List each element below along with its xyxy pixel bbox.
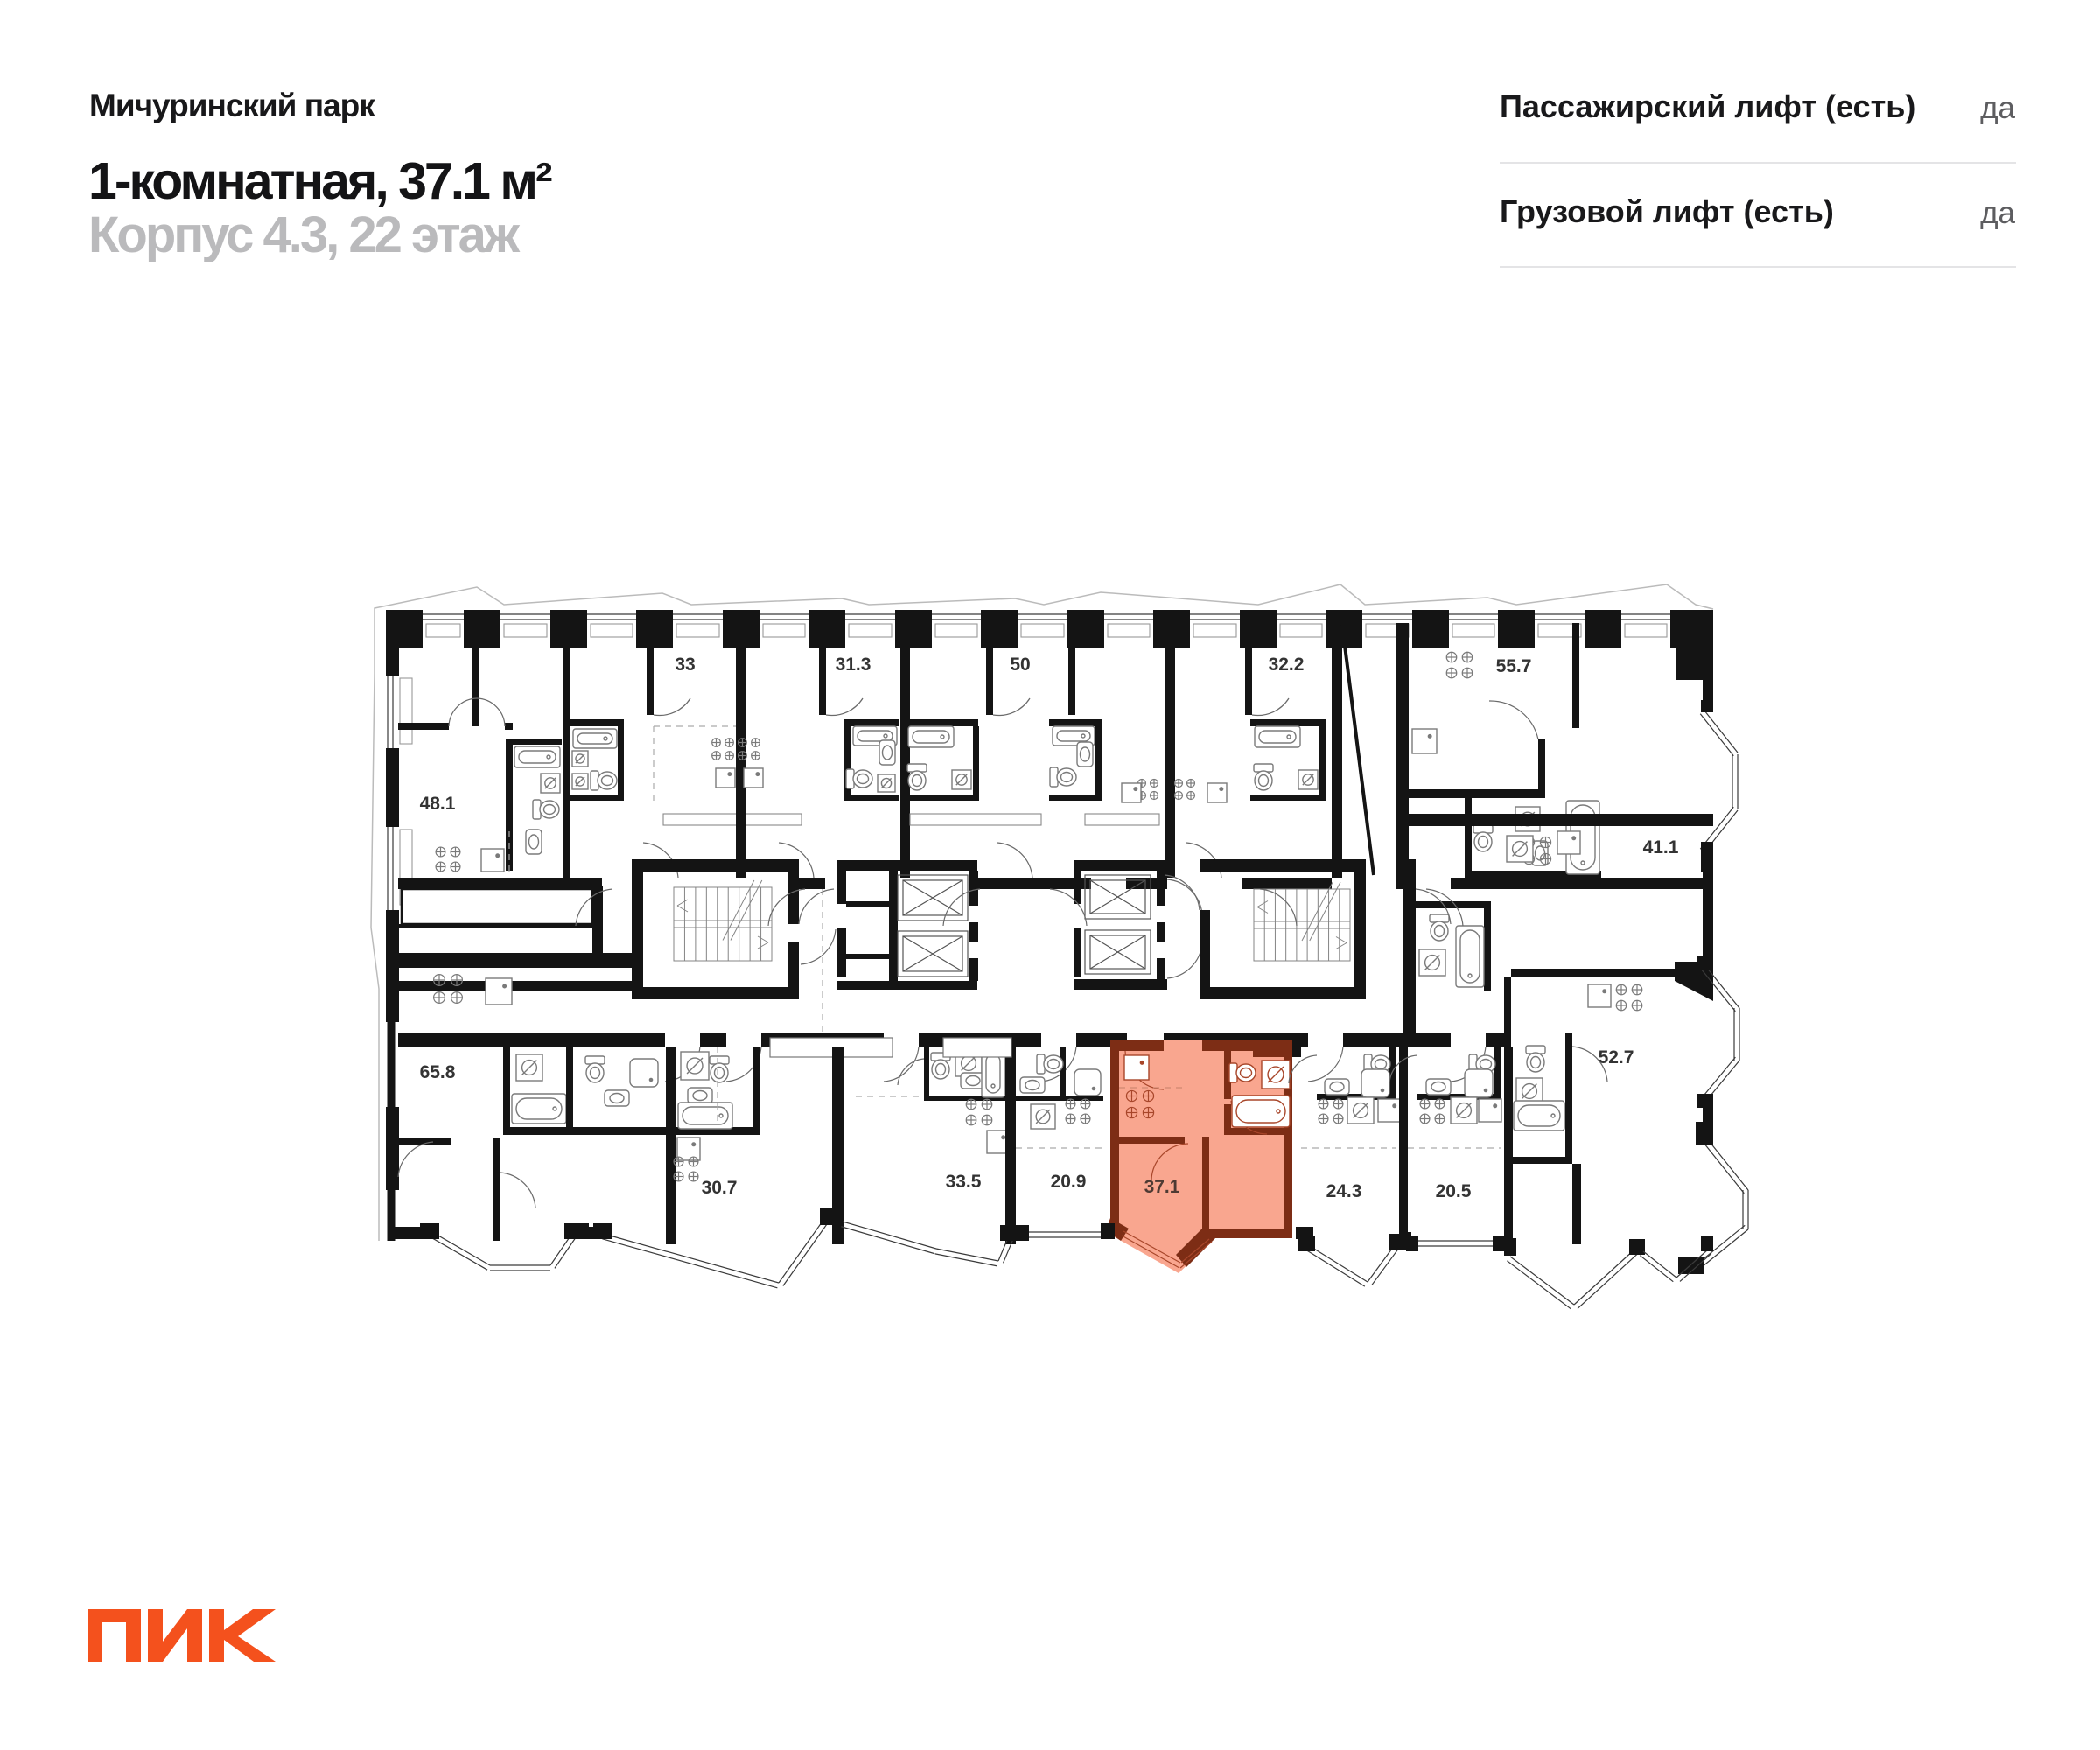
svg-text:31.3: 31.3	[836, 654, 871, 675]
svg-text:32.2: 32.2	[1269, 654, 1305, 675]
svg-text:33: 33	[675, 654, 695, 675]
svg-text:30.7: 30.7	[702, 1178, 738, 1198]
svg-text:52.7: 52.7	[1599, 1047, 1634, 1067]
svg-text:50: 50	[1010, 654, 1030, 675]
svg-text:55.7: 55.7	[1496, 656, 1532, 676]
svg-text:33.5: 33.5	[946, 1172, 982, 1192]
svg-text:37.1: 37.1	[1144, 1177, 1180, 1197]
svg-text:20.5: 20.5	[1436, 1181, 1472, 1201]
svg-text:65.8: 65.8	[420, 1062, 456, 1082]
svg-text:24.3: 24.3	[1326, 1181, 1362, 1201]
svg-text:48.1: 48.1	[420, 794, 456, 814]
svg-text:20.9: 20.9	[1051, 1172, 1087, 1192]
svg-text:41.1: 41.1	[1643, 837, 1679, 857]
